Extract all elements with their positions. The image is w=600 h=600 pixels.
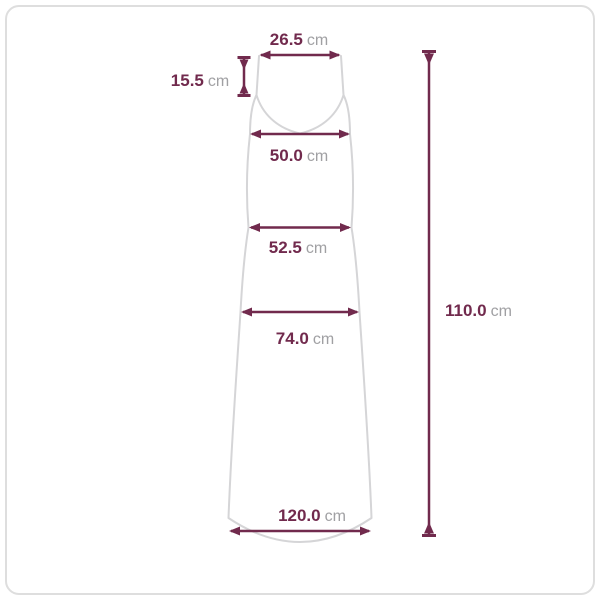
bust-width-measure [250,130,350,139]
unit-text: cm [491,303,512,320]
unit-text: cm [306,240,327,257]
unit-text: cm [325,508,346,525]
arrow-left-icon [250,130,261,139]
dress-neckline [257,95,344,134]
total-length-label: 110.0cm [445,302,512,320]
strap-drop-value: 15.5 [171,71,204,90]
waist-width-value: 52.5 [269,238,302,257]
unit-text: cm [307,148,328,165]
hem-width-value: 120.0 [278,506,321,525]
bust-width-label: 50.0cm [270,147,328,165]
strap-drop-label: 15.5cm [171,72,229,90]
arrow-right-icon [339,130,350,139]
measure-marks [229,50,436,537]
unit-text: cm [208,73,229,90]
arrow-right-icon [360,527,371,536]
arrow-left-icon [229,527,240,536]
unit-text: cm [307,32,328,49]
total-length-value: 110.0 [445,301,487,320]
arrow-right-icon [348,308,359,317]
waist-width-measure [249,223,351,232]
arrow-down-icon [240,83,249,94]
hip-width-measure [241,308,359,317]
arrow-left-icon [260,51,271,60]
hip-width-label: 74.0cm [276,330,334,348]
size-chart-card: 26.5cm 15.5cm 50.0cm 52.5cm 74.0cm 120.0… [0,0,600,600]
arrow-right-icon [340,223,351,232]
dress-silhouette [229,56,372,542]
arrow-up-icon [424,54,434,66]
arrow-left-icon [249,223,260,232]
top-width-label: 26.5cm [270,31,328,49]
hem-width-measure [229,527,371,536]
bust-width-value: 50.0 [270,146,303,165]
arrow-right-icon [330,51,341,60]
total-length-measure [422,50,436,537]
hip-width-value: 74.0 [276,329,309,348]
dress-outline [229,56,372,542]
hem-width-label: 120.0cm [278,507,346,525]
top-width-measure [260,51,341,60]
arrow-left-icon [241,308,252,317]
arrow-up-icon [240,60,249,71]
strap-drop-measure [238,56,251,97]
waist-width-label: 52.5cm [269,239,327,257]
unit-text: cm [313,331,334,348]
arrow-down-icon [424,522,434,534]
top-width-value: 26.5 [270,30,303,49]
